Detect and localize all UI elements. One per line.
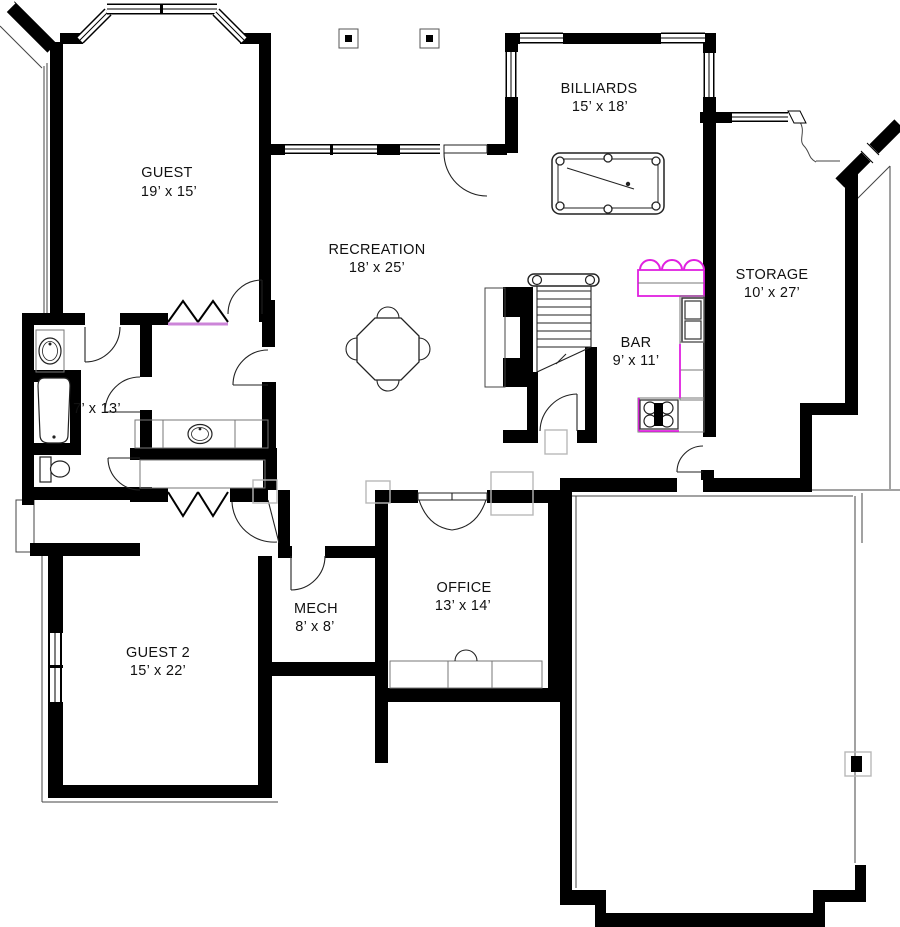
bathroom-fixtures [36, 330, 70, 482]
guest-door [228, 280, 262, 314]
guest2-closet-bifold [140, 460, 265, 516]
recreation-windows [285, 144, 440, 155]
room-label-bar: BAR [621, 335, 652, 351]
toilet-room-door [108, 458, 140, 490]
bathroom-door [85, 327, 120, 362]
room-label-guest: GUEST [141, 165, 192, 181]
room-label-billiards: BILLIARDS [561, 81, 638, 97]
room-label-guest2: GUEST 2 [126, 645, 190, 661]
stair-closet-door [540, 394, 577, 431]
room-dims-bar: 9’ x 11’ [613, 353, 660, 369]
room-dims-billiards: 15’ x 18’ [572, 99, 628, 115]
floor-plan-drawing: GUEST 19’ x 15’ RECREATION 18’ x 25’ BIL… [0, 0, 900, 927]
bay-window [80, 4, 244, 40]
hall-vanity-counter [135, 420, 268, 448]
bar-stools [640, 260, 704, 270]
room-dims-guest: 19’ x 15’ [141, 184, 197, 200]
bar-counter [638, 270, 704, 296]
guest2-window [48, 629, 63, 706]
cooktop-4-burner [640, 400, 678, 429]
game-table-with-chairs [346, 307, 430, 391]
vanity-sink [36, 330, 64, 372]
storage-window [732, 111, 806, 123]
storage-door [677, 446, 703, 472]
room-dims-recreation: 18’ x 25’ [349, 260, 405, 276]
desk-chair [455, 650, 477, 661]
room-label-office: OFFICE [437, 580, 492, 596]
recreation-top-door [444, 145, 487, 196]
floor-plan: GUEST 19’ x 15’ RECREATION 18’ x 25’ BIL… [0, 0, 900, 927]
office-double-doors [418, 493, 487, 530]
room-label-mech: MECH [294, 601, 338, 617]
walls [4, 2, 899, 927]
room-dims-bathroom: 7’ x 13’ [73, 401, 121, 417]
room-labels: GUEST 19’ x 15’ RECREATION 18’ x 25’ BIL… [73, 81, 808, 679]
room-label-recreation: RECREATION [329, 242, 426, 258]
mech-door [291, 556, 325, 590]
pool-table [552, 153, 664, 214]
room-dims-storage: 10’ x 27’ [744, 285, 800, 301]
guest2-door [232, 500, 279, 543]
windows [48, 4, 806, 706]
deck-post-markers [339, 29, 439, 48]
closet-bifold-doors [140, 301, 265, 516]
hall-recreation-door [233, 350, 268, 385]
room-dims-mech: 8’ x 8’ [295, 619, 334, 635]
refrigerator [682, 298, 704, 342]
office-desk [390, 650, 542, 688]
room-label-storage: STORAGE [736, 267, 809, 283]
room-dims-office: 13’ x 14’ [435, 598, 491, 614]
bathtub [38, 378, 70, 443]
room-dims-guest2: 15’ x 22’ [130, 663, 186, 679]
toilet [40, 457, 70, 482]
guest-closet-bifold [168, 301, 228, 324]
